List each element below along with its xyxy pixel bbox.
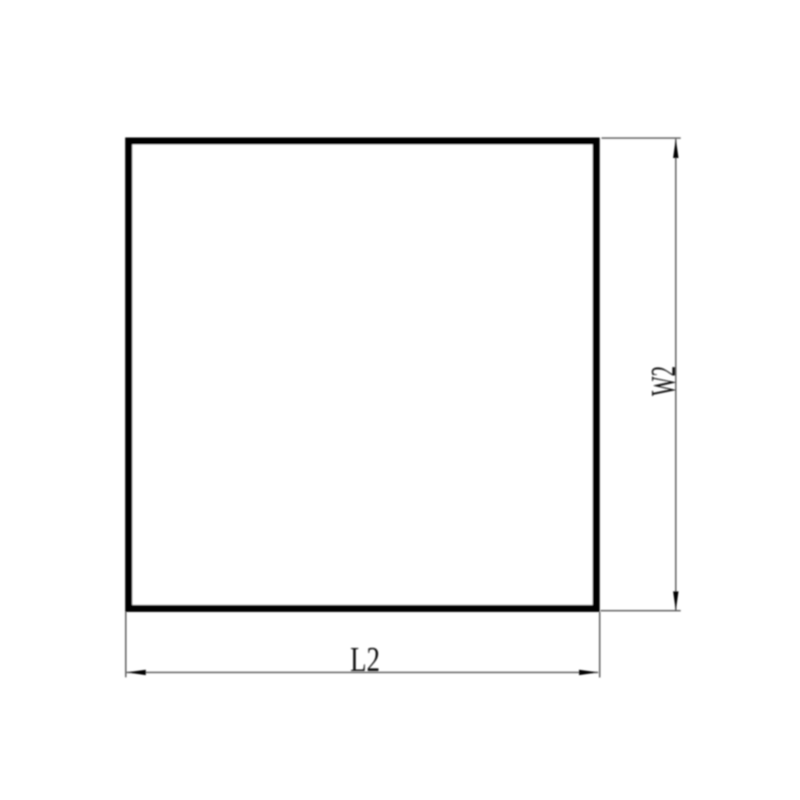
svg-text:W2: W2	[646, 366, 684, 396]
svg-text:L2: L2	[350, 640, 380, 679]
